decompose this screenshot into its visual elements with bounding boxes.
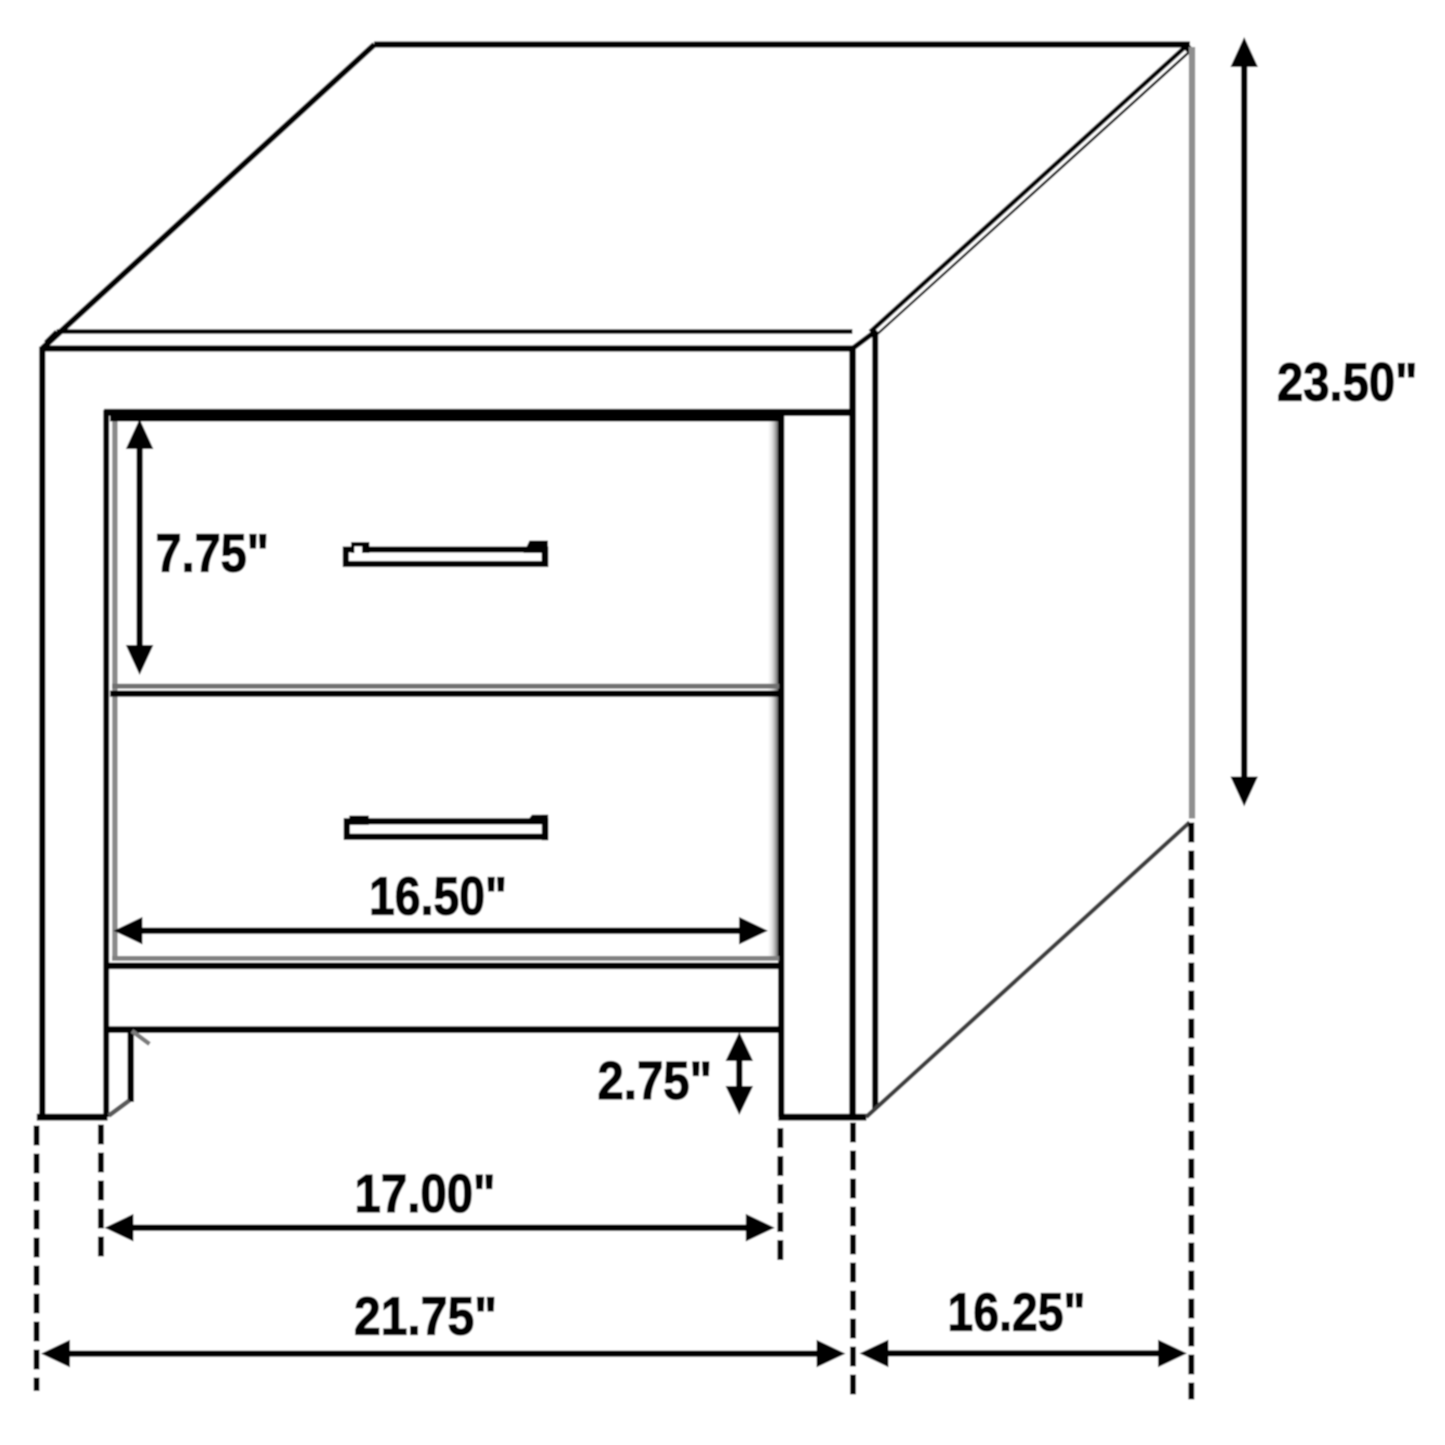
svg-text:16.25": 16.25" xyxy=(948,1283,1086,1343)
svg-text:21.75": 21.75" xyxy=(354,1287,497,1347)
svg-text:2.75": 2.75" xyxy=(598,1051,713,1111)
svg-text:23.50": 23.50" xyxy=(1277,353,1418,413)
svg-text:16.50": 16.50" xyxy=(369,867,507,927)
svg-text:17.00": 17.00" xyxy=(355,1164,496,1224)
svg-text:7.75": 7.75" xyxy=(156,524,270,584)
